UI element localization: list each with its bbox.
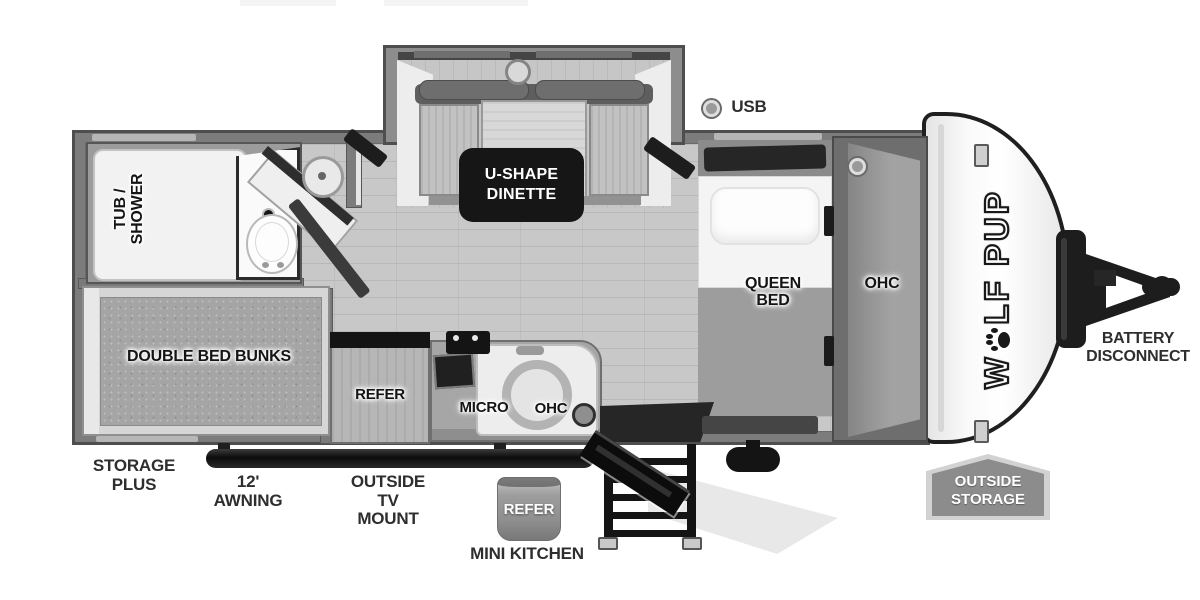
faucet-icon [516,346,544,355]
battery-disconnect-label: BATTERY DISCONNECT [1084,328,1192,368]
bunks-label: DOUBLE BED BUNKS [104,344,314,370]
refer-label-text: REFER [355,387,405,403]
sink-drain-icon [318,172,326,180]
queen-bed-label: QUEEN BED [737,270,809,314]
awning-label-text: 12' AWNING [202,473,294,510]
logo-suffix: LF PUP [978,189,1016,324]
bed-foot-cushion [702,416,818,434]
window [96,436,198,442]
header-artifact [240,0,336,6]
usb-indicator-icon [703,100,720,117]
grab-handle [726,447,780,472]
bunks-label-text: DOUBLE BED BUNKS [127,348,291,365]
usb-label-text: USB [731,98,766,117]
mini-kitchen-refer-text: REFER [504,501,555,518]
toilet [246,214,298,274]
bed-headboard [704,144,827,171]
queen-bed-line1: QUEEN [745,275,801,292]
mini-kitchen-refer-tag: REFER [497,477,561,541]
outside-storage-badge: OUTSIDE STORAGE [926,454,1050,520]
floorplan-canvas: U-SHAPE DINETTE USB TUB / SHOWER DOUBLE … [0,0,1200,600]
step-foot [598,537,618,550]
step-rung [612,530,688,537]
step-foot [682,537,702,550]
cap-seam [938,124,944,432]
slide-window [536,51,632,58]
toilet-seat [255,222,289,262]
tv-mount-label: OUTSIDE TV MOUNT [346,481,430,521]
bedroom-ohc-label: OHC [850,273,914,295]
kitchen-sink-bowl [502,360,572,430]
cap-hinge [974,420,989,443]
queen-bed-line2: BED [756,292,789,309]
cabinet-hinge [824,336,834,366]
cap-hinge [974,144,989,167]
usb-label: USB [726,96,772,118]
awning-rail [206,449,594,468]
window [714,133,822,140]
toilet-hinge [277,262,284,268]
header-artifact [384,0,528,6]
tv-mount-line1: OUTSIDE [351,473,425,492]
bumper-highlight [1061,238,1067,340]
outside-storage-badge-face: OUTSIDE STORAGE [932,459,1044,516]
speaker-icon [572,403,596,427]
stove-icon [446,331,490,354]
outside-storage-line2: STORAGE [951,491,1025,508]
cooktop-well [433,353,475,390]
kitchen-ohc-text: OHC [535,401,568,417]
storage-plus-label: STORAGE PLUS [92,455,176,497]
bumper-plate [1056,230,1086,348]
bunk-side-board [84,288,99,434]
burner-icon [472,335,478,341]
tub-shower-label: TUB / SHOWER [106,124,152,294]
wolf-pup-logo: WLF PUP [970,174,1024,404]
bedroom-ohc-text: OHC [865,275,900,292]
tub-shower-line2: SHOWER [129,174,146,245]
dinette-bench-right [589,104,649,196]
tub-shower-line1: TUB / [112,189,129,230]
storage-plus-line2: PLUS [112,476,157,495]
table-leg-mount [505,59,531,85]
coupler-icon [1151,276,1173,298]
usb-indicator-icon [849,158,866,175]
step-rung [612,512,688,519]
slide-window [414,51,510,58]
battery-line1: BATTERY [1102,330,1174,348]
toilet-hinge [262,262,269,268]
mini-kitchen-label: MINI KITCHEN [468,544,586,564]
cabinet-hinge [824,206,834,236]
bathroom-sink [302,156,344,198]
dinette-label-line2: DINETTE [487,185,557,205]
paw-icon [984,328,1010,352]
dinette-label-line1: U-SHAPE [485,165,558,185]
kitchen-ohc-label: OHC [531,399,571,419]
mini-kitchen-text: MINI KITCHEN [470,545,584,564]
entry-steps [604,444,696,550]
awning-label: 12' AWNING [202,482,294,502]
micro-label-text: MICRO [460,400,509,416]
micro-label: MICRO [455,398,513,418]
battery-line2: DISCONNECT [1086,348,1190,366]
refrigerator-top [330,332,430,348]
refer-label: REFER [340,384,420,406]
entry-doorway [600,402,714,442]
outside-storage-line1: OUTSIDE [955,473,1022,490]
logo-prefix: W [978,355,1016,389]
tv-mount-line2: TV MOUNT [346,492,430,529]
burner-icon [453,335,459,341]
tongue-jack [1094,270,1116,286]
dinette-cushion [535,80,645,100]
storage-plus-line1: STORAGE [93,457,175,476]
dinette-label: U-SHAPE DINETTE [459,148,584,222]
pillow [710,187,820,245]
